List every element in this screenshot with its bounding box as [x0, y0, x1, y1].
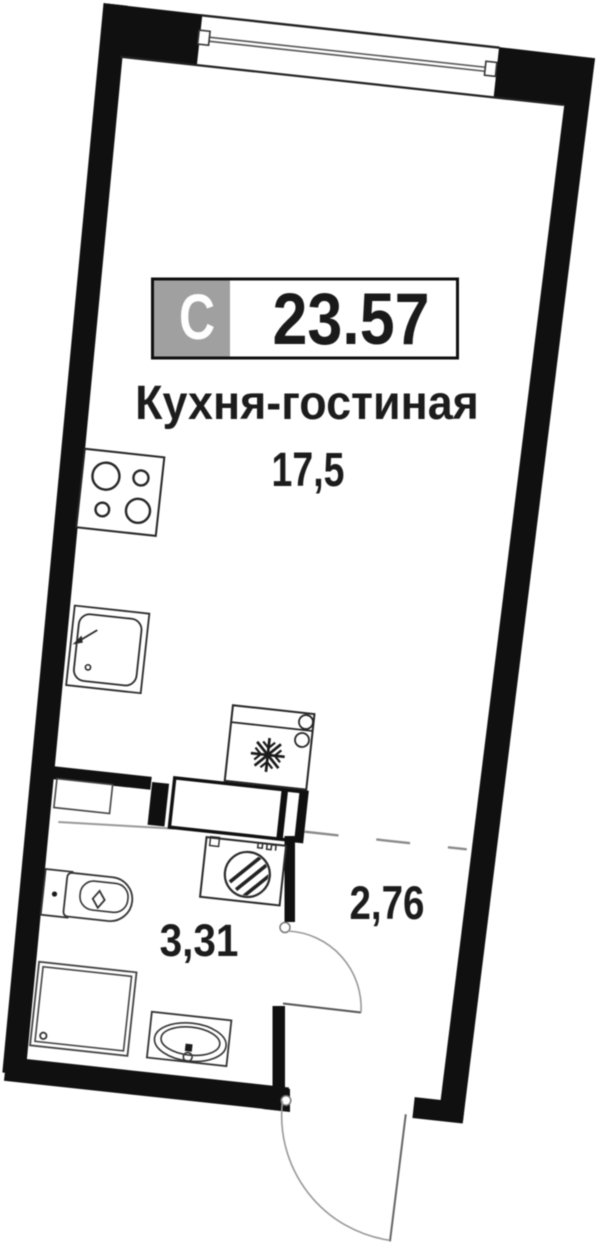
- svg-text:3,31: 3,31: [160, 916, 239, 966]
- svg-text:С: С: [179, 282, 215, 353]
- svg-text:23.57: 23.57: [272, 279, 429, 360]
- svg-text:17,5: 17,5: [272, 444, 345, 498]
- svg-text:Кухня-гостиная: Кухня-гостиная: [135, 376, 479, 430]
- svg-text:2,76: 2,76: [349, 877, 424, 929]
